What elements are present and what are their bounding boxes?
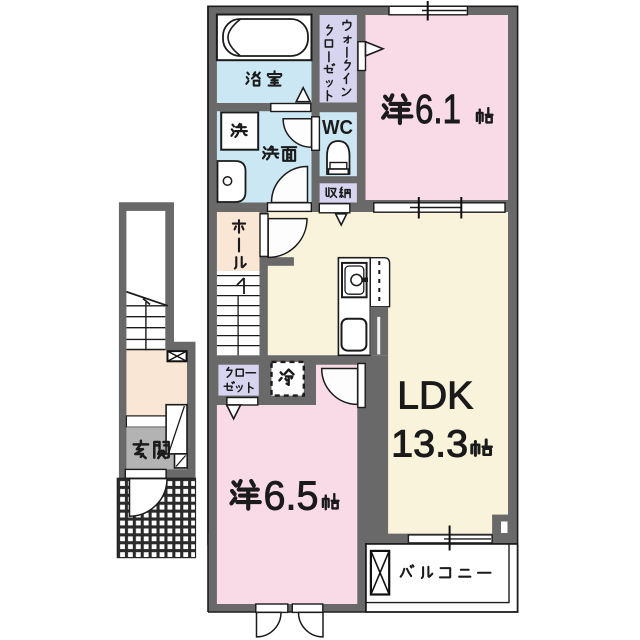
svg-text:WC: WC (322, 117, 353, 139)
svg-text:LDK: LDK (397, 375, 473, 418)
svg-text:6.1: 6.1 (415, 86, 461, 132)
svg-text:13.3: 13.3 (391, 424, 468, 466)
svg-text:6.5: 6.5 (264, 472, 319, 518)
